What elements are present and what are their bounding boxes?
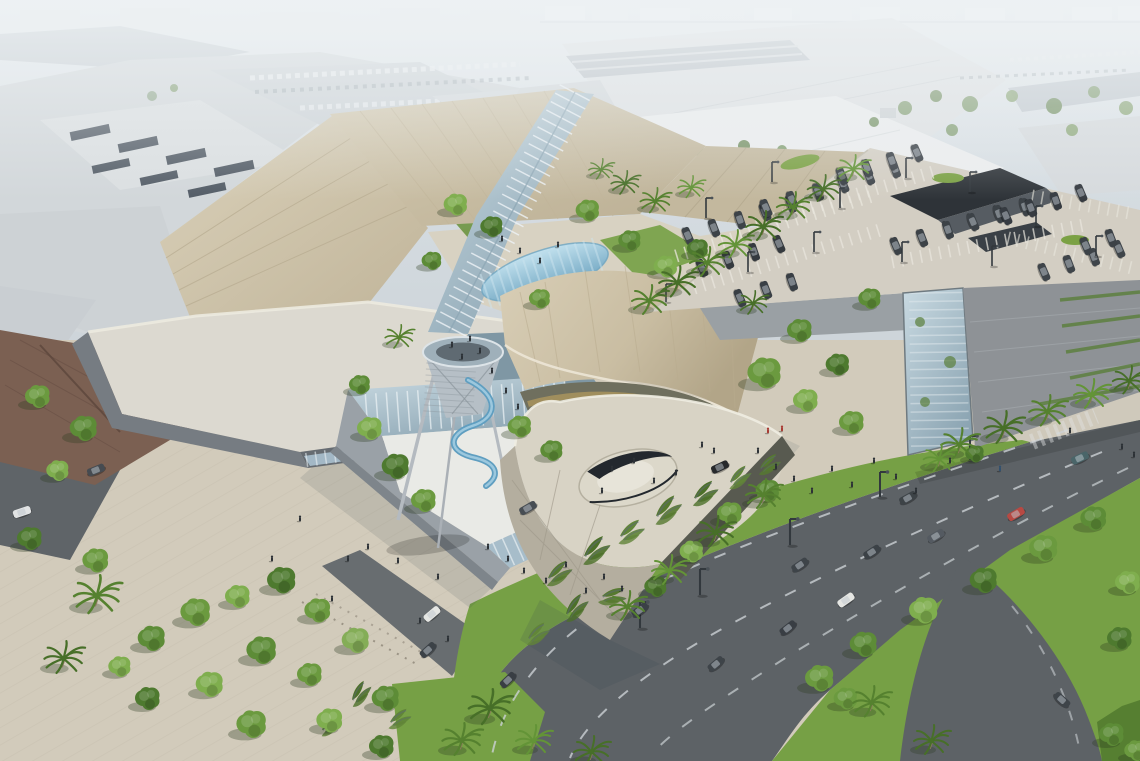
rendering-canvas: Aerial architectural rendering of a shop… — [0, 0, 1140, 761]
aerial-rendering-image: Aerial architectural rendering of a shop… — [0, 0, 1140, 761]
atmospheric-haze — [0, 0, 1140, 200]
